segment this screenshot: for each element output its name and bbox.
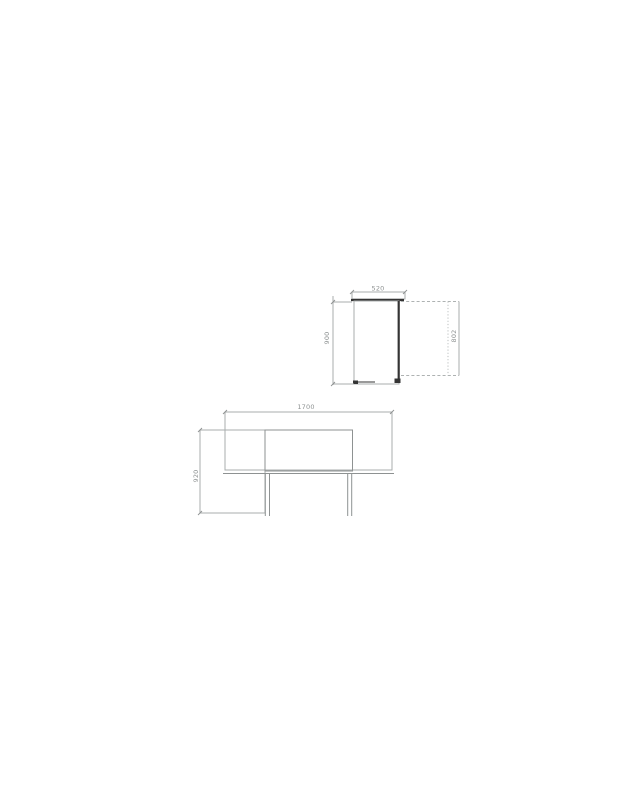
- side-view: 520 900: [323, 285, 459, 387]
- left-return-panel: [200, 430, 265, 513]
- furniture-dimension-drawing: 520 900: [0, 0, 619, 800]
- product-dimension-sheet: 520 900: [0, 0, 619, 800]
- front-view: 1700 920: [192, 403, 394, 516]
- cabinet-foot-right: [395, 379, 401, 384]
- modesty-panel: [265, 430, 353, 471]
- cabinet-foot-left: [353, 381, 358, 385]
- desktop-outline: [225, 412, 392, 470]
- cabinet-top-panel: [352, 292, 405, 299]
- side-view-width-dim-label: 520: [371, 285, 384, 293]
- side-view-door-dim-label: 802: [450, 329, 458, 342]
- front-view-height-dim-label: 920: [192, 469, 200, 482]
- front-view-width-dim-label: 1700: [297, 403, 314, 411]
- side-view-height-dim-label: 900: [323, 331, 331, 344]
- cabinet-body-outline: [354, 301, 399, 384]
